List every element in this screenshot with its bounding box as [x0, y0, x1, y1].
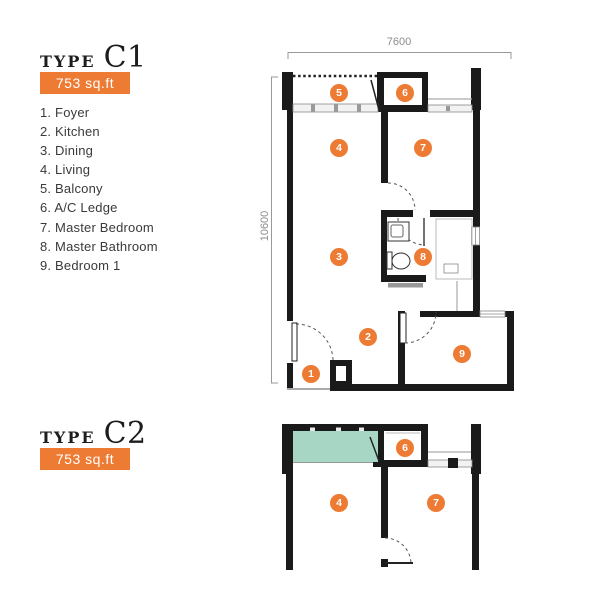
- c1-entrance-door-leaf: [292, 323, 297, 361]
- c1-vanity-counter: [388, 283, 423, 288]
- c1-marker-kitchen: 2: [359, 328, 377, 346]
- toilet-fixture: [392, 253, 410, 269]
- c2-marker-ac-ledge: 6: [396, 439, 414, 457]
- c1-master-bedroom-door-swing: [388, 183, 415, 210]
- c1-foyer-threshold: [287, 388, 330, 390]
- c1-dim-left-line: [272, 77, 279, 383]
- legend-item-balcony: 5. Balcony: [40, 179, 158, 198]
- c1-marker-ac-ledge: 6: [396, 84, 414, 102]
- c2-doors: [385, 538, 413, 564]
- legend-item-foyer: 1. Foyer: [40, 103, 158, 122]
- c1-marker-master-bedroom: 7: [414, 139, 432, 157]
- c1-marker-bedroom-1: 9: [453, 345, 471, 363]
- c1-fixtures: [387, 222, 410, 269]
- legend-item-kitchen: 2. Kitchen: [40, 122, 158, 141]
- c2-type-code: C2: [104, 416, 147, 451]
- c2-enclosed-balcony-fill: [293, 431, 378, 462]
- c1-marker-living: 4: [330, 139, 348, 157]
- toilet-tank: [387, 252, 392, 269]
- c1-foyer-column-core: [336, 366, 346, 381]
- legend-item-bedroom-1: 9. Bedroom 1: [40, 256, 158, 275]
- legend-item-master-bathroom: 8. Master Bathroom: [40, 237, 158, 256]
- c1-bedroom1-door-leaf: [400, 313, 406, 343]
- c1-type-heading: TYPE C1: [40, 40, 147, 75]
- c1-floor-plan: [240, 35, 530, 400]
- c2-door-swing: [385, 538, 411, 564]
- c1-dim-top-line: [288, 53, 511, 60]
- c1-doors: [286, 76, 436, 363]
- legend-item-dining: 3. Dining: [40, 141, 158, 160]
- legend-item-ac-ledge: 6. A/C Ledge: [40, 198, 158, 217]
- c2-type-heading: TYPE C2: [40, 416, 147, 451]
- c1-type-label: TYPE: [40, 52, 96, 71]
- c1-room-legend: 1. Foyer 2. Kitchen 3. Dining 4. Living …: [40, 103, 158, 275]
- legend-item-living: 4. Living: [40, 160, 158, 179]
- c1-marker-balcony: 5: [330, 84, 348, 102]
- c2-marker-living: 4: [330, 494, 348, 512]
- c2-type-label: TYPE: [40, 428, 96, 447]
- c1-shower-tray: [444, 264, 458, 273]
- c2-balcony-area: [293, 428, 379, 463]
- floor-plan-sheet: TYPE C1 753 sq.ft 1. Foyer 2. Kitchen 3.…: [0, 0, 600, 600]
- c1-entrance-door-swing: [296, 324, 333, 361]
- c1-marker-master-bathroom: 8: [414, 248, 432, 266]
- legend-item-master-bedroom: 7. Master Bedroom: [40, 218, 158, 237]
- c2-area-badge: 753 sq.ft: [40, 448, 130, 470]
- c2-floor-plan: [240, 415, 530, 575]
- c1-type-code: C1: [104, 40, 147, 75]
- c1-area-badge: 753 sq.ft: [40, 72, 130, 94]
- c2-window-pier: [448, 458, 458, 468]
- c1-marker-dining: 3: [330, 248, 348, 266]
- c1-marker-foyer: 1: [302, 365, 320, 383]
- c1-windows: [287, 99, 505, 390]
- c2-marker-master-bedroom: 7: [427, 494, 445, 512]
